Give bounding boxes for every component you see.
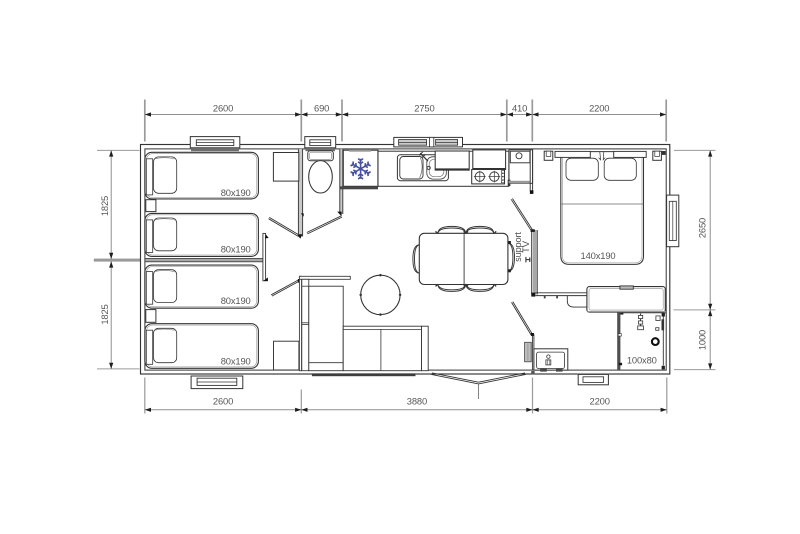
- svg-text:2200: 2200: [590, 396, 610, 407]
- svg-text:80x190: 80x190: [221, 295, 251, 306]
- svg-text:1825: 1825: [99, 196, 110, 216]
- svg-text:2200: 2200: [589, 102, 609, 113]
- svg-text:80x190: 80x190: [221, 356, 251, 367]
- svg-text:140x190: 140x190: [581, 250, 616, 261]
- svg-text:3880: 3880: [407, 396, 427, 407]
- svg-text:2650: 2650: [697, 218, 708, 238]
- svg-text:2750: 2750: [414, 102, 434, 113]
- svg-text:690: 690: [314, 102, 329, 113]
- svg-text:410: 410: [512, 102, 527, 113]
- svg-text:2600: 2600: [213, 102, 233, 113]
- svg-text:2600: 2600: [213, 396, 233, 407]
- svg-text:80x190: 80x190: [221, 244, 251, 255]
- svg-text:TV: TV: [521, 240, 532, 253]
- svg-text:80x190: 80x190: [221, 187, 251, 198]
- svg-text:1000: 1000: [697, 330, 708, 350]
- svg-text:100x80: 100x80: [627, 355, 657, 366]
- svg-text:1825: 1825: [99, 304, 110, 324]
